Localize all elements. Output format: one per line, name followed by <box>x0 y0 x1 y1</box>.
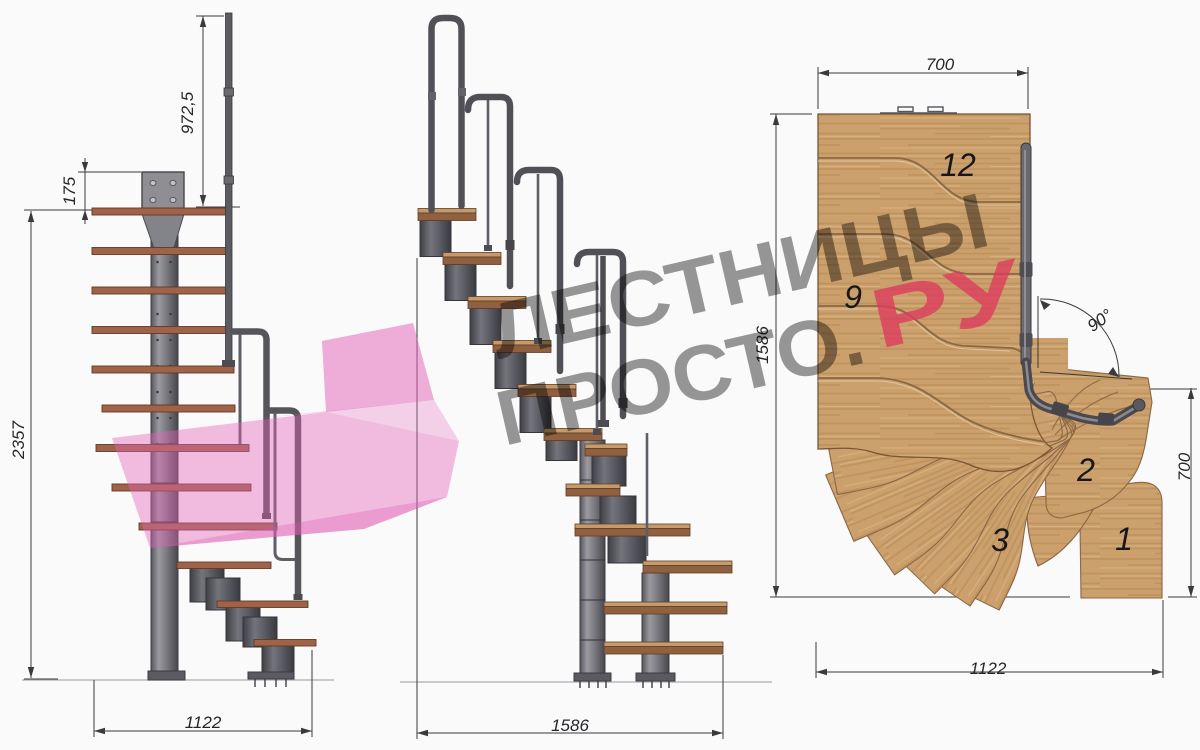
svg-text:700: 700 <box>1175 452 1194 481</box>
svg-text:2357: 2357 <box>9 421 28 460</box>
svg-text:1122: 1122 <box>185 713 222 732</box>
svg-text:1122: 1122 <box>970 659 1007 678</box>
svg-text:175: 175 <box>60 176 79 205</box>
svg-text:3: 3 <box>991 522 1009 558</box>
svg-text:700: 700 <box>926 55 955 74</box>
svg-text:1: 1 <box>1115 521 1133 557</box>
svg-text:2: 2 <box>1076 452 1095 488</box>
svg-text:1586: 1586 <box>551 716 589 735</box>
svg-text:972,5: 972,5 <box>178 91 197 134</box>
